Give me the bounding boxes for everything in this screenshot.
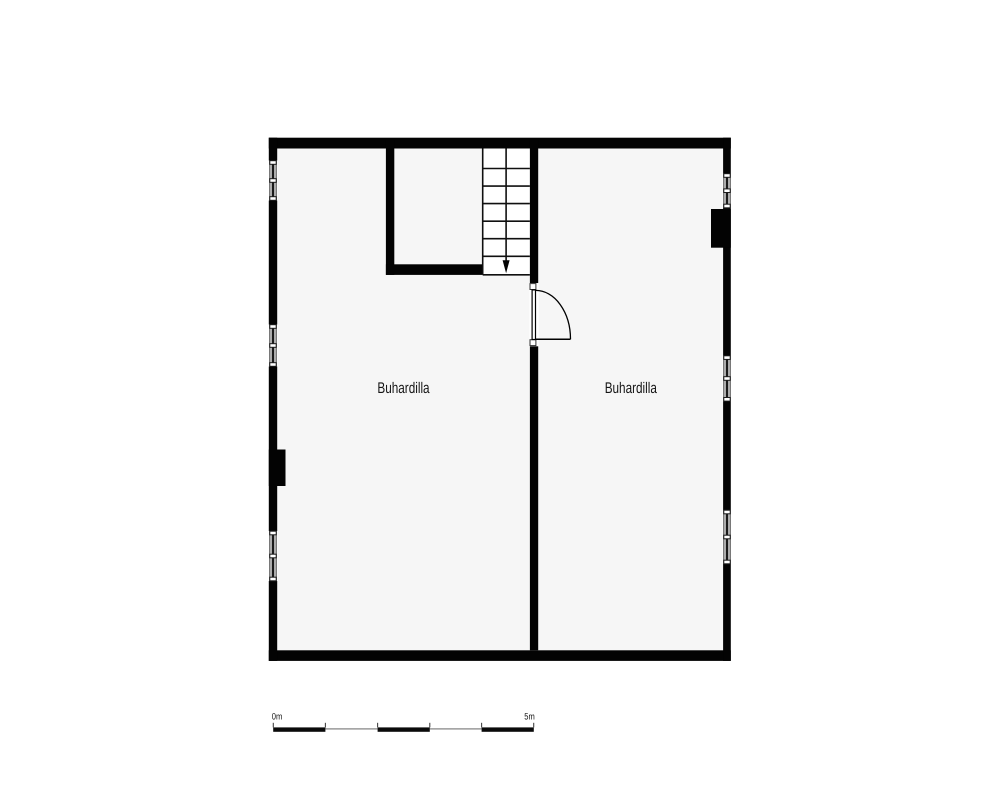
svg-text:0m: 0m: [272, 711, 283, 721]
svg-text:Buhardilla: Buhardilla: [377, 380, 430, 397]
svg-text:Buhardilla: Buhardilla: [605, 380, 658, 397]
svg-text:5m: 5m: [524, 711, 535, 721]
